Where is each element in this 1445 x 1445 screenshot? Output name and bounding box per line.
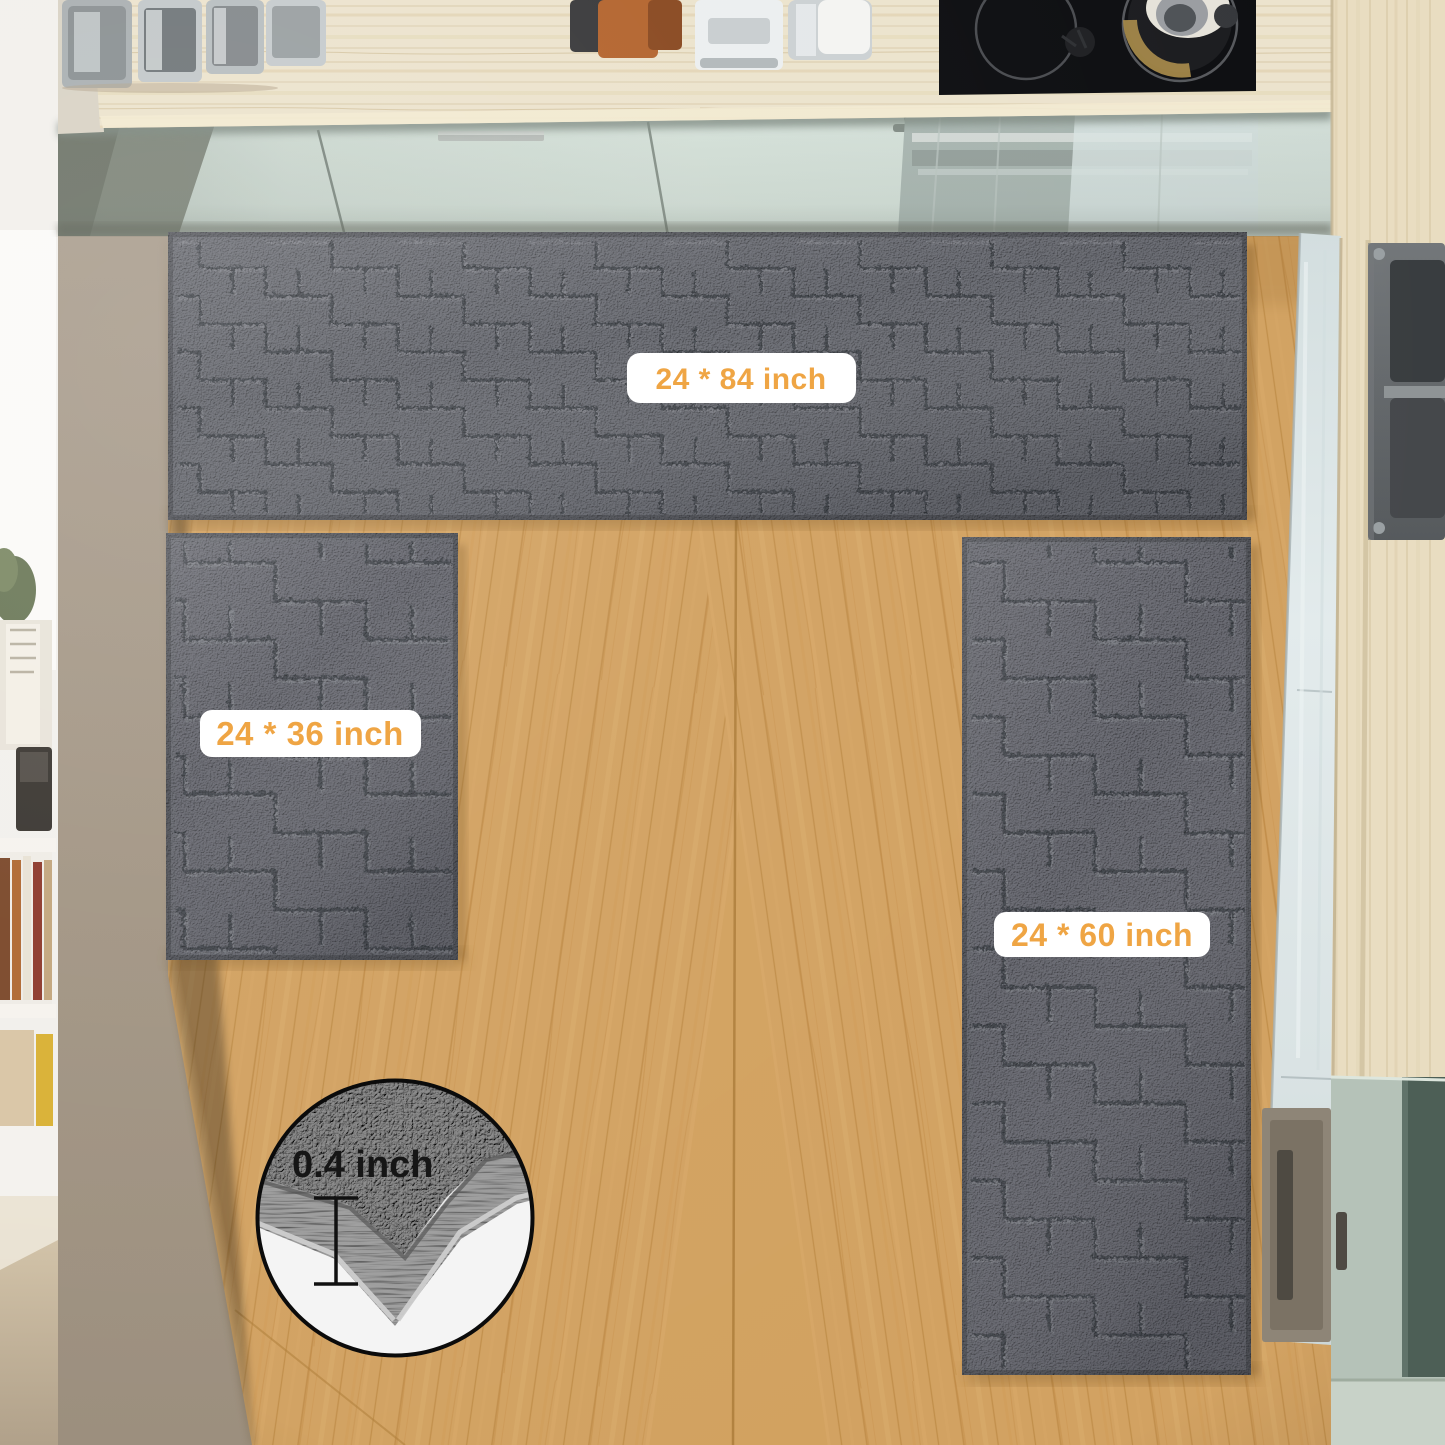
svg-text:24 * 36 inch: 24 * 36 inch bbox=[216, 715, 404, 752]
svg-text:24 * 84 inch: 24 * 84 inch bbox=[655, 363, 826, 396]
svg-text:24 * 60 inch: 24 * 60 inch bbox=[1011, 917, 1193, 953]
svg-text:0.4 inch: 0.4 inch bbox=[292, 1144, 434, 1186]
